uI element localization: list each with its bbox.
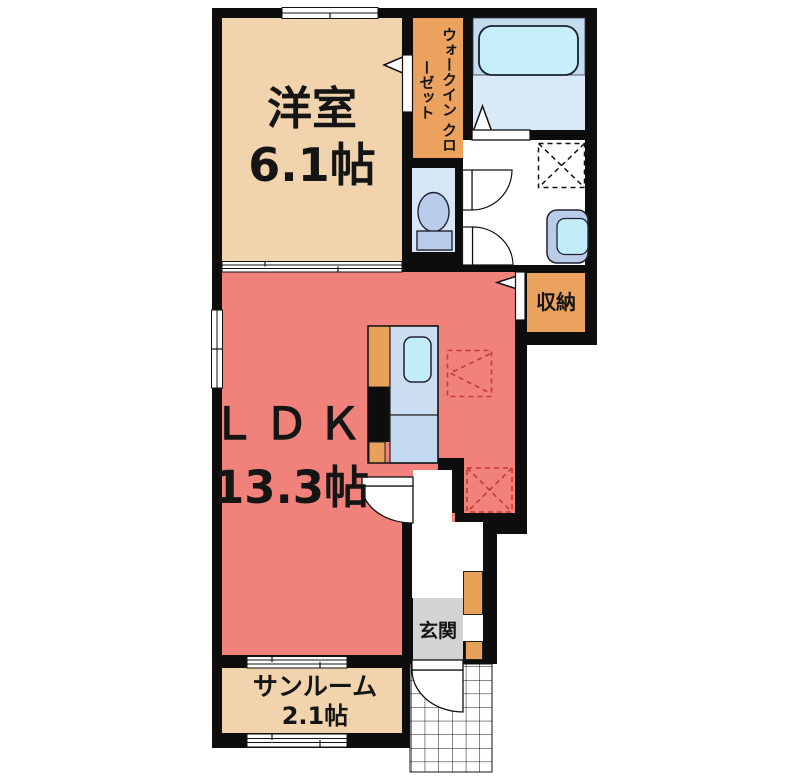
wall-stub-kitchen (438, 458, 464, 470)
sunroom-name: サンルーム (225, 673, 405, 701)
label-walk-in-closet: ウォークイン クローゼット (414, 24, 460, 156)
room-toilet (412, 168, 455, 252)
ldk-name: ＬＤＫ (210, 400, 372, 449)
western-room-name: 洋室 (222, 84, 402, 134)
room-ldk-lower (222, 522, 402, 655)
wic-text-right: ウォークイン (440, 27, 458, 117)
room-washroom (463, 140, 585, 265)
ldk-size: 13.3帖 (210, 463, 372, 513)
entrance-door-icon (412, 660, 463, 712)
shoe-cabinet (463, 571, 483, 615)
entrance-step (463, 615, 483, 641)
western-room-size: 6.1帖 (222, 140, 402, 192)
room-bathroom (473, 18, 585, 130)
label-storage: 収納 (527, 291, 585, 313)
wall-pocket-bottom (455, 513, 523, 522)
label-ldk: ＬＤＫ 13.3帖 (210, 400, 372, 514)
storage-name: 収納 (527, 291, 585, 313)
label-sunroom: サンルーム 2.1帖 (225, 673, 405, 730)
entrance-name: 玄関 (411, 621, 465, 642)
porch-tiles (410, 664, 492, 772)
floor-plan: 洋室 6.1帖 ウォークイン クローゼット ＬＤＫ 13.3帖 収納 玄関 サン… (0, 0, 800, 784)
sunroom-size: 2.1帖 (225, 703, 405, 730)
hallway-upper (413, 470, 452, 522)
label-western-room: 洋室 6.1帖 (222, 84, 402, 192)
label-entrance: 玄関 (411, 621, 465, 642)
entrance-cabinet (465, 641, 483, 660)
